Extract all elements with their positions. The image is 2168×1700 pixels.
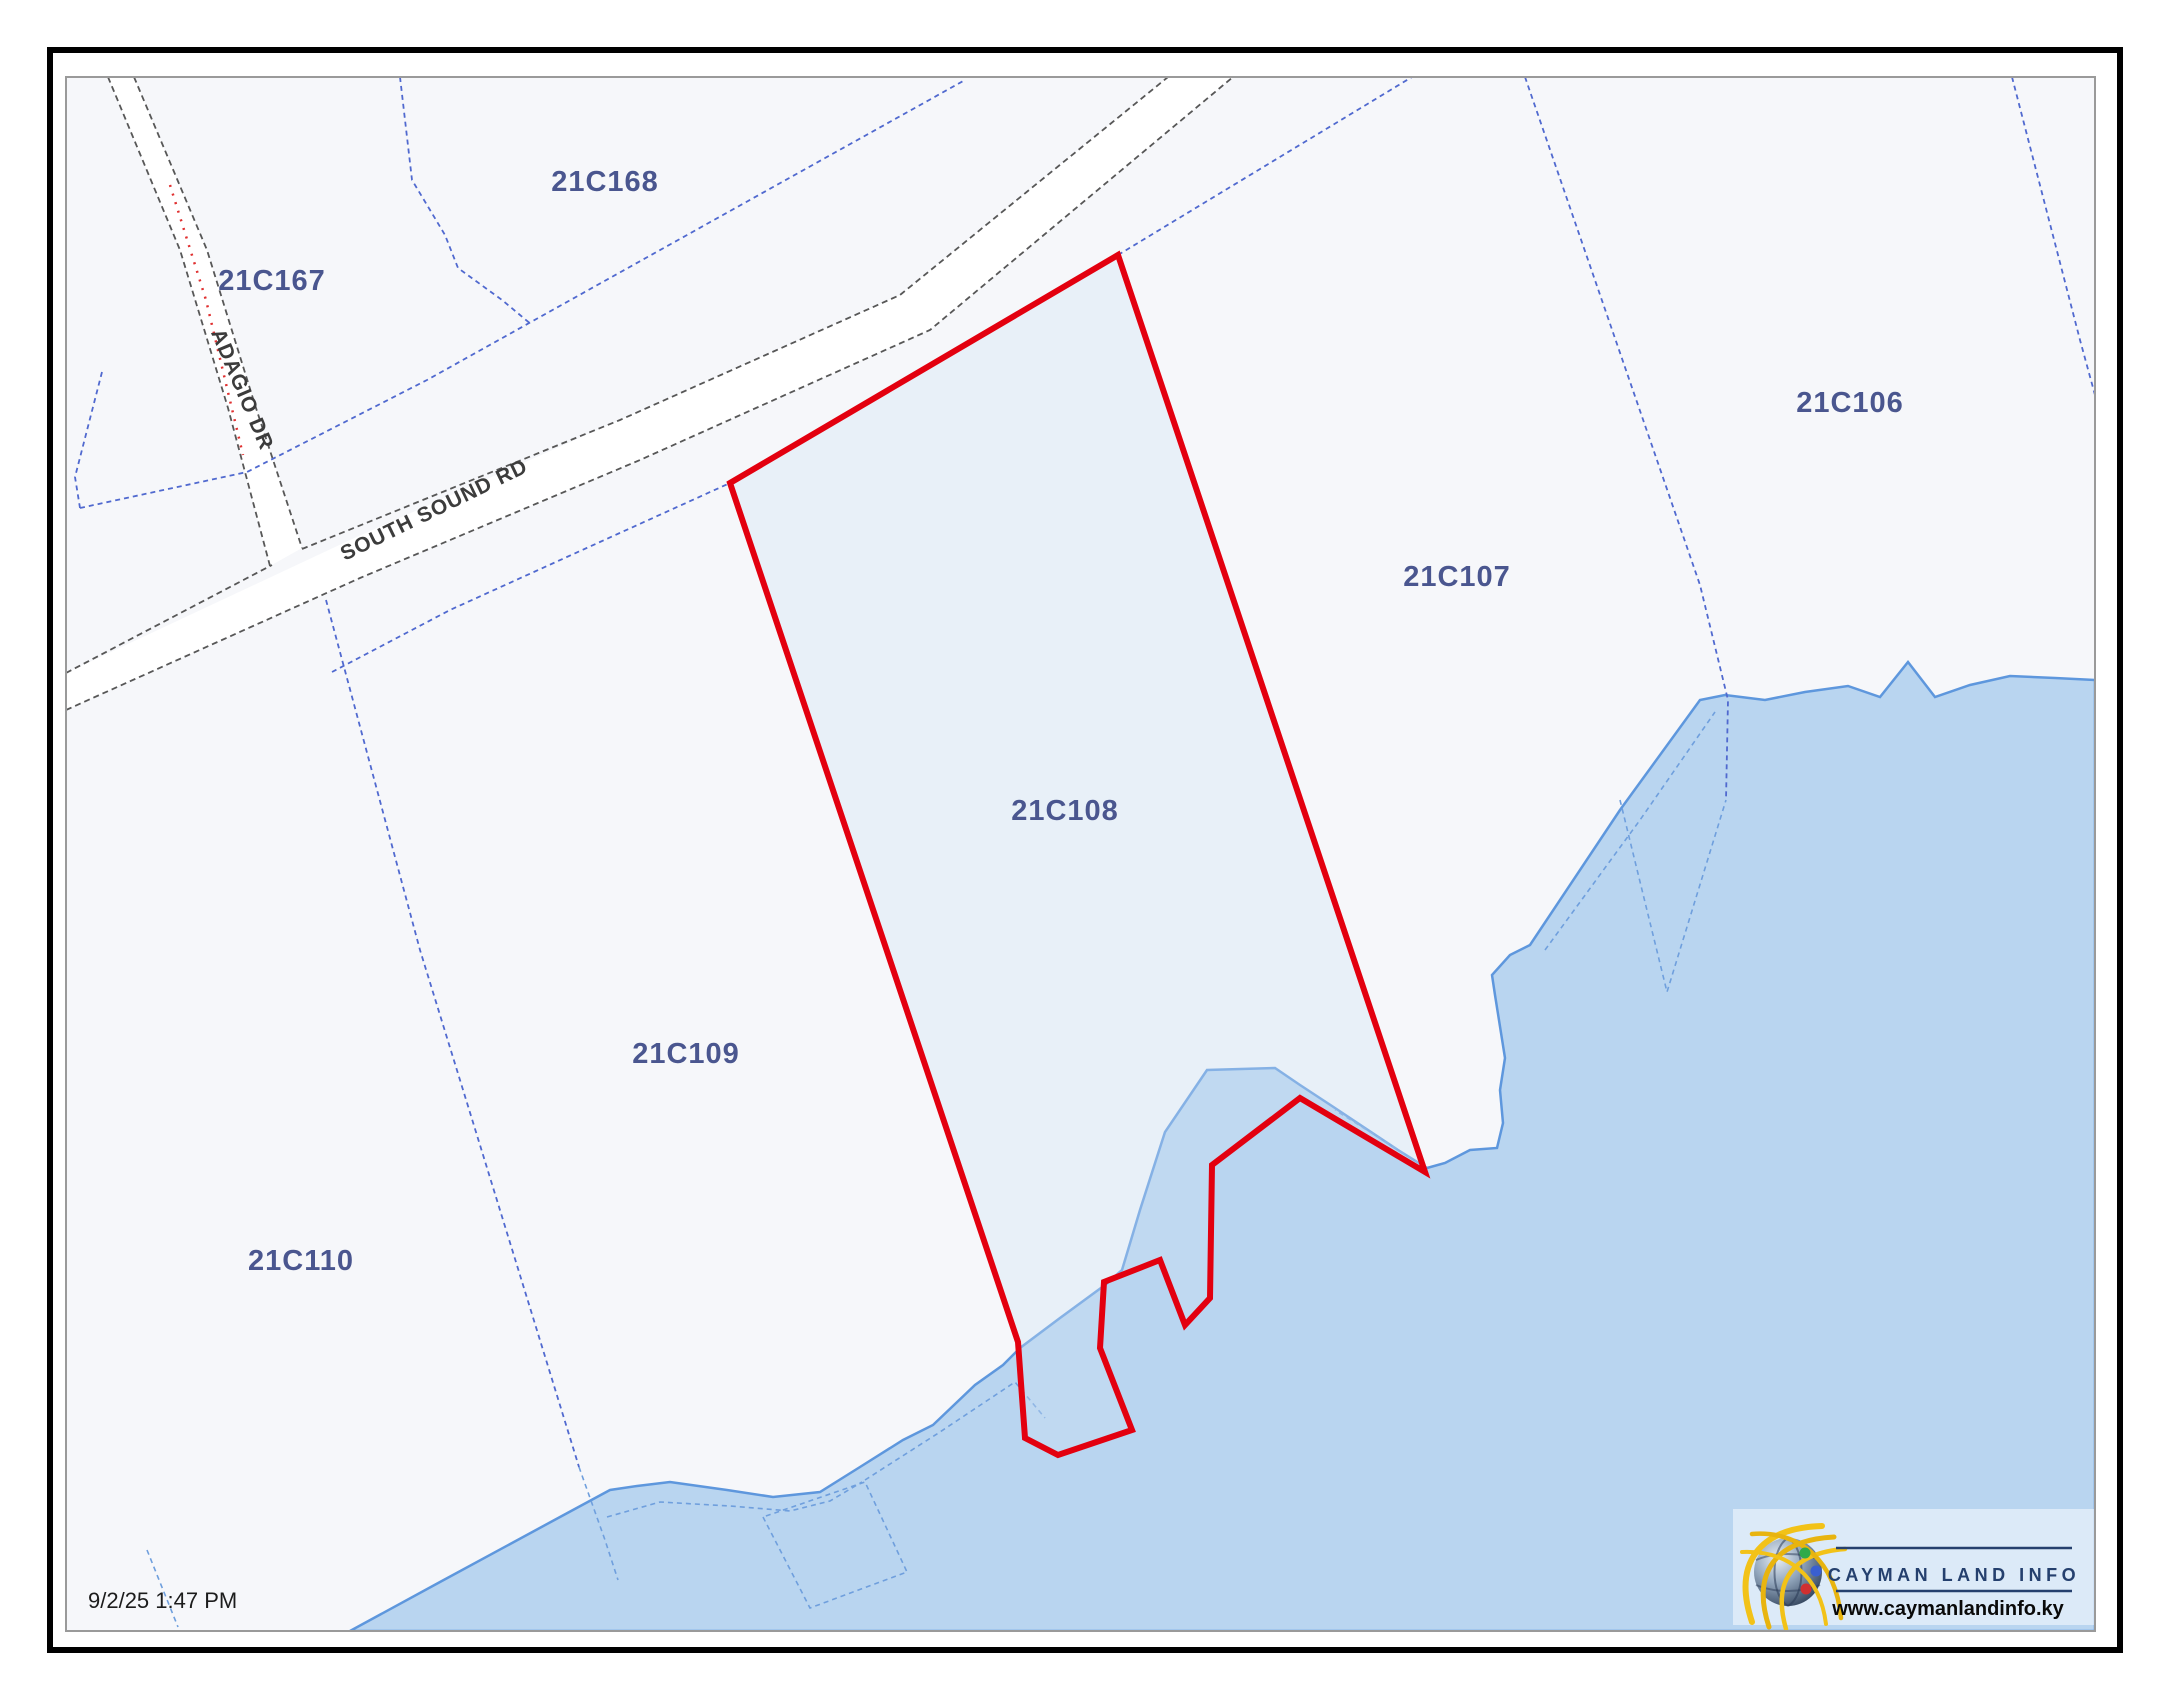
parcel-label-21c110: 21C110 — [248, 1245, 354, 1277]
logo-brand-text: CAYMAN LAND INFO — [1828, 1565, 2080, 1585]
parcel-label-21c167: 21C167 — [218, 265, 326, 297]
globe-blue-dot — [1811, 1566, 1822, 1577]
parcel-label-21c109: 21C109 — [632, 1038, 740, 1070]
globe-green-dot — [1800, 1548, 1811, 1559]
timestamp: 9/2/25 1:47 PM — [88, 1588, 237, 1613]
logo-url-text[interactable]: www.caymanlandinfo.ky — [1831, 1598, 2064, 1620]
parcel-label-21c108: 21C108 — [1011, 795, 1119, 827]
parcel-label-21c106: 21C106 — [1796, 387, 1904, 419]
map-canvas: 21C167 21C168 21C106 21C107 21C108 21C10… — [0, 0, 2168, 1700]
parcel-label-21c107: 21C107 — [1403, 561, 1511, 593]
map-page: 21C167 21C168 21C106 21C107 21C108 21C10… — [0, 0, 2168, 1700]
parcel-label-21c168: 21C168 — [551, 166, 659, 198]
cayman-land-info-logo[interactable]: CAYMAN LAND INFO www.caymanlandinfo.ky — [1733, 1509, 2095, 1629]
globe-red-dot — [1801, 1584, 1812, 1595]
